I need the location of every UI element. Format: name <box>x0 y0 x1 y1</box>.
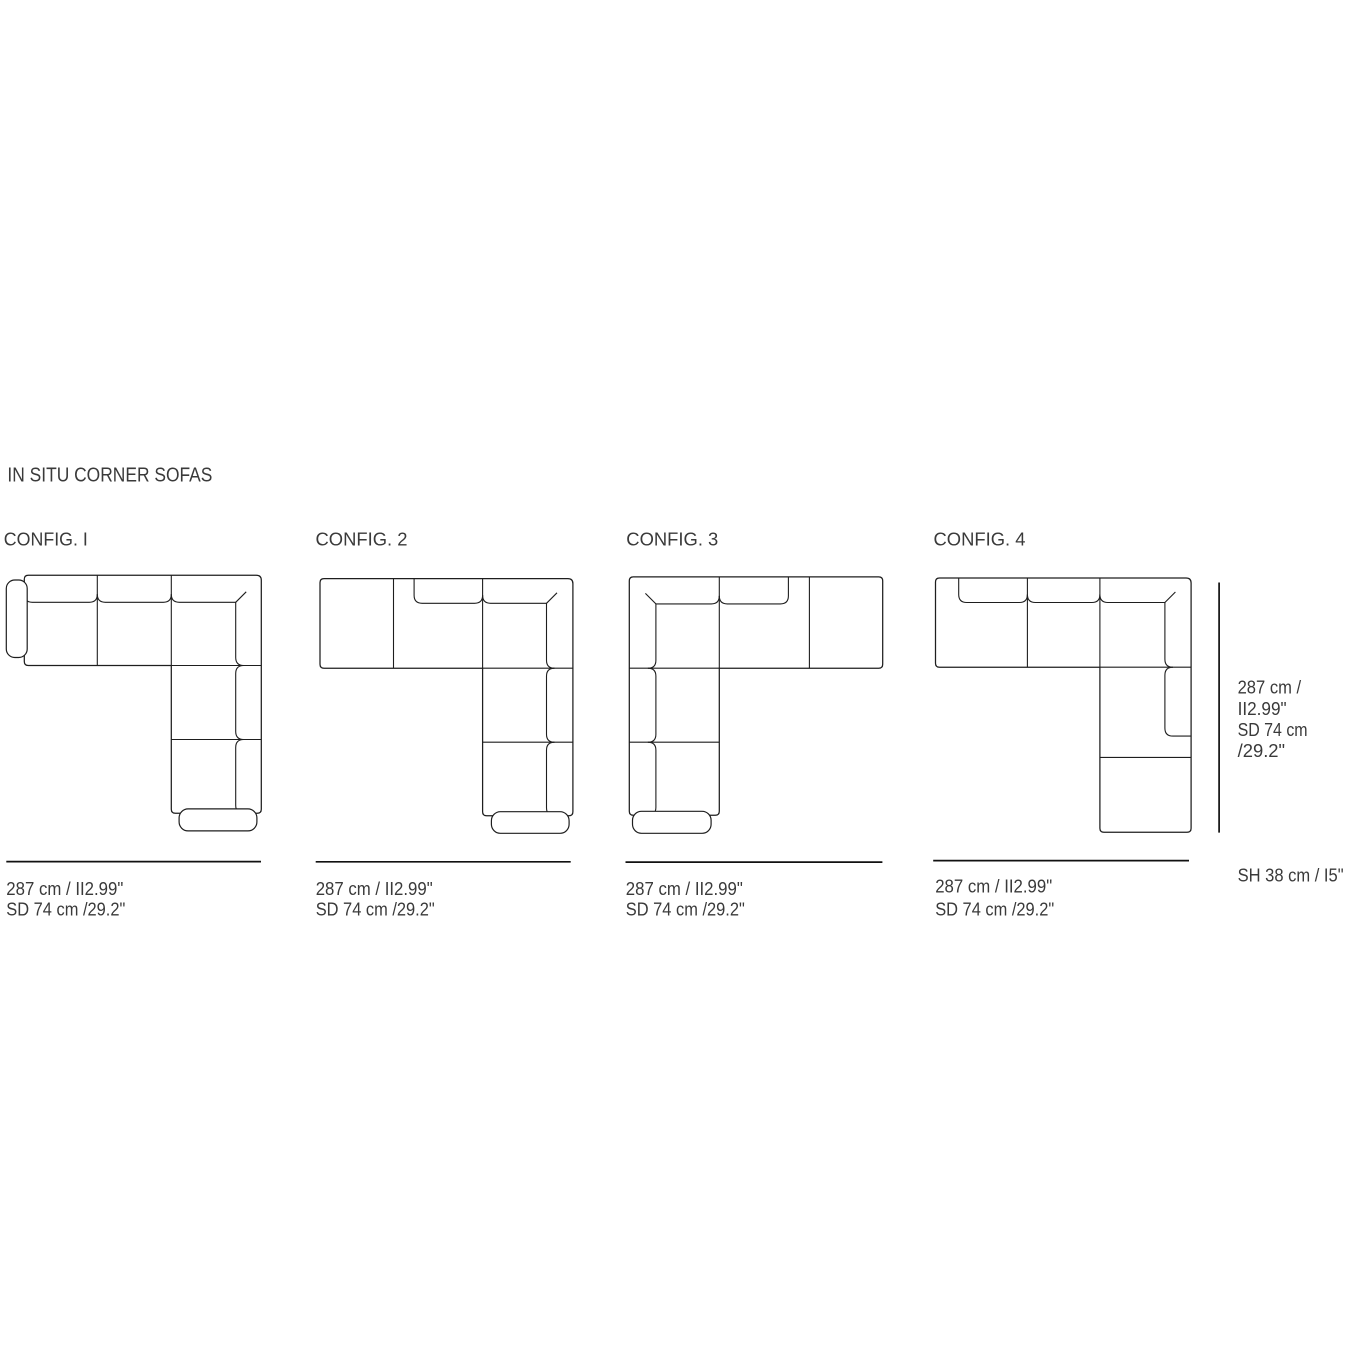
svg-text:287 cm / II2.99": 287 cm / II2.99" <box>626 879 743 899</box>
svg-text:SD 74 cm /29.2": SD 74 cm /29.2" <box>626 900 745 920</box>
svg-text:287 cm /: 287 cm / <box>1238 678 1302 698</box>
svg-text:287 cm / II2.99": 287 cm / II2.99" <box>935 877 1052 897</box>
svg-text:SD 74 cm /29.2": SD 74 cm /29.2" <box>6 900 125 920</box>
svg-text:/29.2": /29.2" <box>1238 741 1286 761</box>
svg-text:287 cm / II2.99": 287 cm / II2.99" <box>6 879 123 899</box>
svg-text:SD 74 cm /29.2": SD 74 cm /29.2" <box>935 899 1054 919</box>
svg-text:CONFIG. 2: CONFIG. 2 <box>316 530 408 550</box>
svg-text:CONFIG. 3: CONFIG. 3 <box>626 530 718 550</box>
svg-text:SH 38 cm / I5": SH 38 cm / I5" <box>1238 866 1344 886</box>
svg-text:287 cm / II2.99": 287 cm / II2.99" <box>316 879 433 899</box>
svg-text:CONFIG. 4: CONFIG. 4 <box>934 530 1026 550</box>
svg-text:CONFIG. I: CONFIG. I <box>4 530 88 550</box>
svg-text:SD 74 cm: SD 74 cm <box>1238 720 1308 740</box>
svg-text:SD 74 cm /29.2": SD 74 cm /29.2" <box>316 900 435 920</box>
svg-text:II2.99": II2.99" <box>1238 699 1287 719</box>
svg-text:IN SITU CORNER SOFAS: IN SITU CORNER SOFAS <box>7 465 212 487</box>
